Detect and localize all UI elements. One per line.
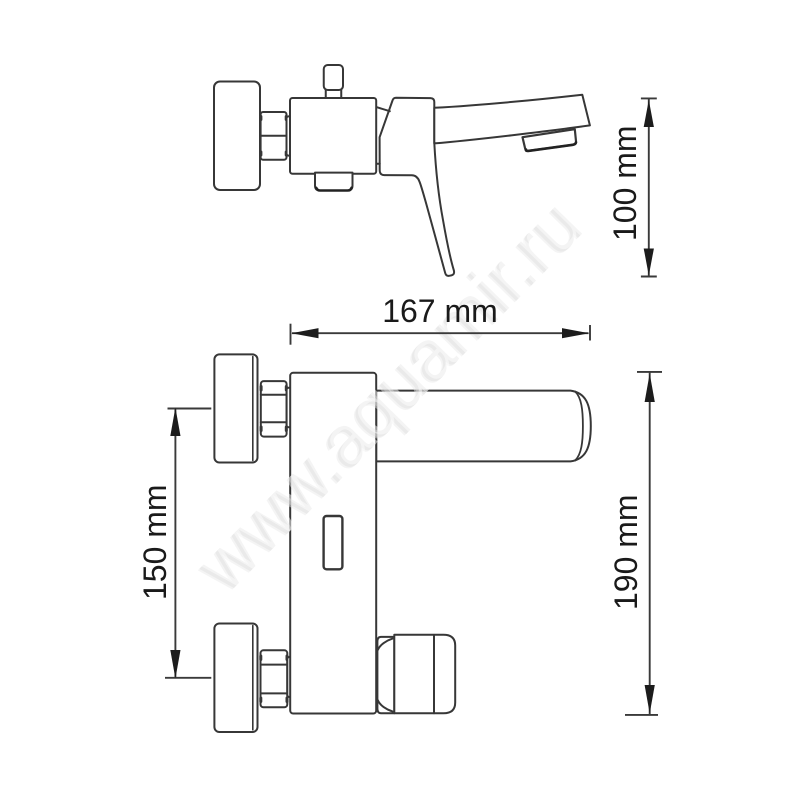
svg-text:100 mm: 100 mm	[607, 125, 643, 241]
svg-text:167 mm: 167 mm	[382, 293, 498, 329]
svg-text:190 mm: 190 mm	[608, 494, 644, 610]
svg-text:150 mm: 150 mm	[137, 484, 173, 600]
